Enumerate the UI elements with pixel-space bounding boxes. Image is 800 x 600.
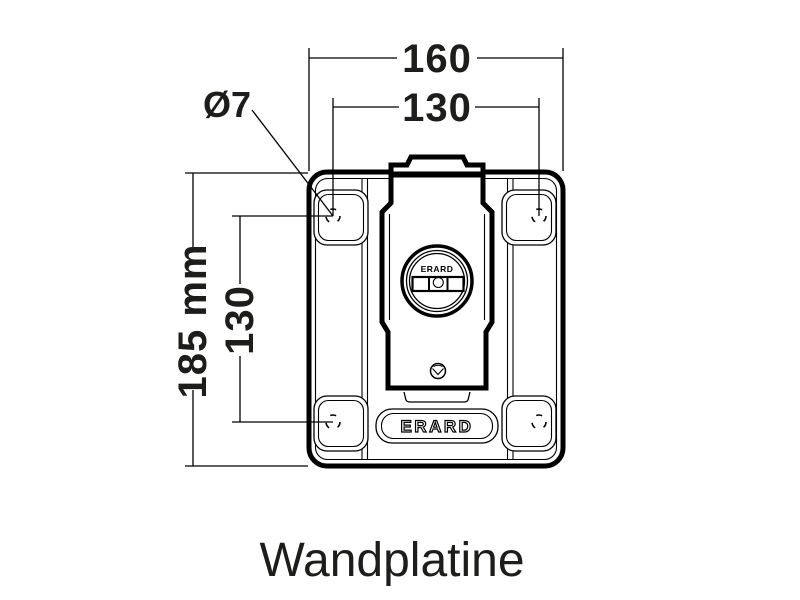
brand-badge: ERARD <box>376 409 498 443</box>
figure-caption: Wandplatine <box>259 534 524 587</box>
badge-brand-text: ERARD <box>401 417 474 436</box>
wall-plate-drawing: ERARD <box>0 0 800 600</box>
dim130l-value: 130 <box>218 285 262 355</box>
level-vial <box>413 277 464 291</box>
dim185-value: 185 mm <box>171 244 215 399</box>
dim160-value: 160 <box>402 37 472 81</box>
pad-top-right <box>502 190 556 245</box>
wall-plate: ERARD <box>309 157 563 466</box>
level-brand-text: ERARD <box>421 264 454 274</box>
top-tab <box>391 157 483 174</box>
hole-diameter-value: Ø7 <box>203 84 251 125</box>
hole-diameter-leader-line <box>252 110 333 216</box>
dim130t-value: 130 <box>402 86 472 130</box>
pad-bottom-right <box>502 396 556 451</box>
bubble-level: ERARD <box>402 246 472 316</box>
technical-drawing-page: ERARD <box>0 0 800 600</box>
screw-icon <box>431 364 446 379</box>
pad-bottom-left <box>314 396 368 451</box>
pad-top-left <box>314 190 368 245</box>
